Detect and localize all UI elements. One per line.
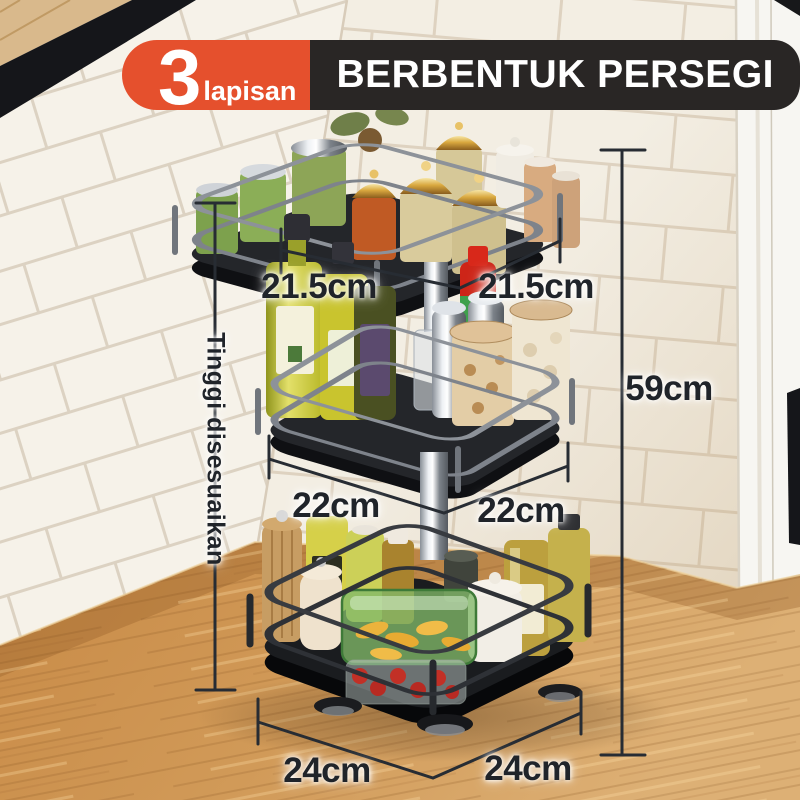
product-showcase: 3 lapisan BERBENTUK PERSEGI 21.5cm 21.5c… — [0, 0, 800, 800]
dim-label-tier1-left: 21.5cm — [261, 267, 377, 307]
tier-count-number: 3 — [158, 44, 201, 110]
dim-label-tier2-right: 22cm — [477, 491, 565, 531]
dim-label-tier1-right: 21.5cm — [478, 267, 594, 307]
dim-label-tier3-left: 24cm — [283, 751, 371, 791]
tier-count-unit: lapisan — [201, 72, 296, 110]
dim-label-tier2-left: 22cm — [292, 486, 380, 526]
dim-label-total-height: 59cm — [625, 369, 713, 409]
badge-title: BERBENTUK PERSEGI — [310, 40, 800, 110]
dim-label-tier3-right: 24cm — [484, 749, 572, 789]
tier-count-pill: 3 lapisan — [122, 40, 310, 110]
tier-count-badge: 3 lapisan BERBENTUK PERSEGI — [122, 40, 800, 110]
dim-label-adjustable-height: Tinggi disesuaikan — [201, 332, 230, 566]
